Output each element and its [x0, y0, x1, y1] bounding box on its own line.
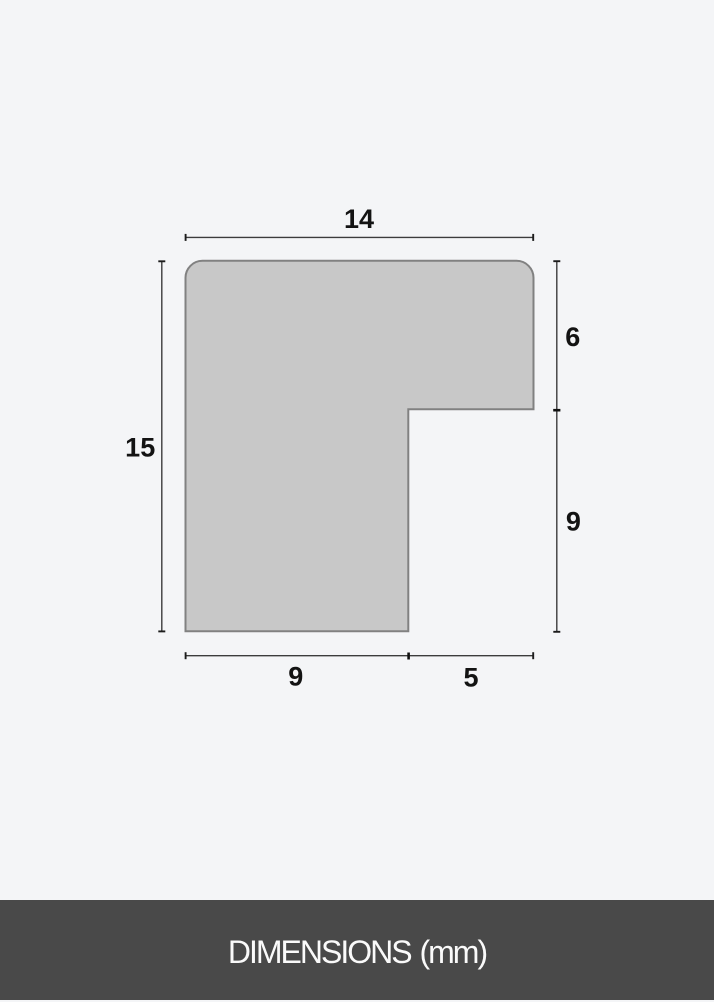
svg-text:5: 5 [463, 662, 478, 692]
svg-text:9: 9 [288, 661, 303, 691]
svg-text:14: 14 [344, 204, 374, 234]
svg-text:15: 15 [125, 433, 155, 463]
svg-text:6: 6 [565, 322, 580, 352]
svg-text:9: 9 [566, 506, 581, 536]
